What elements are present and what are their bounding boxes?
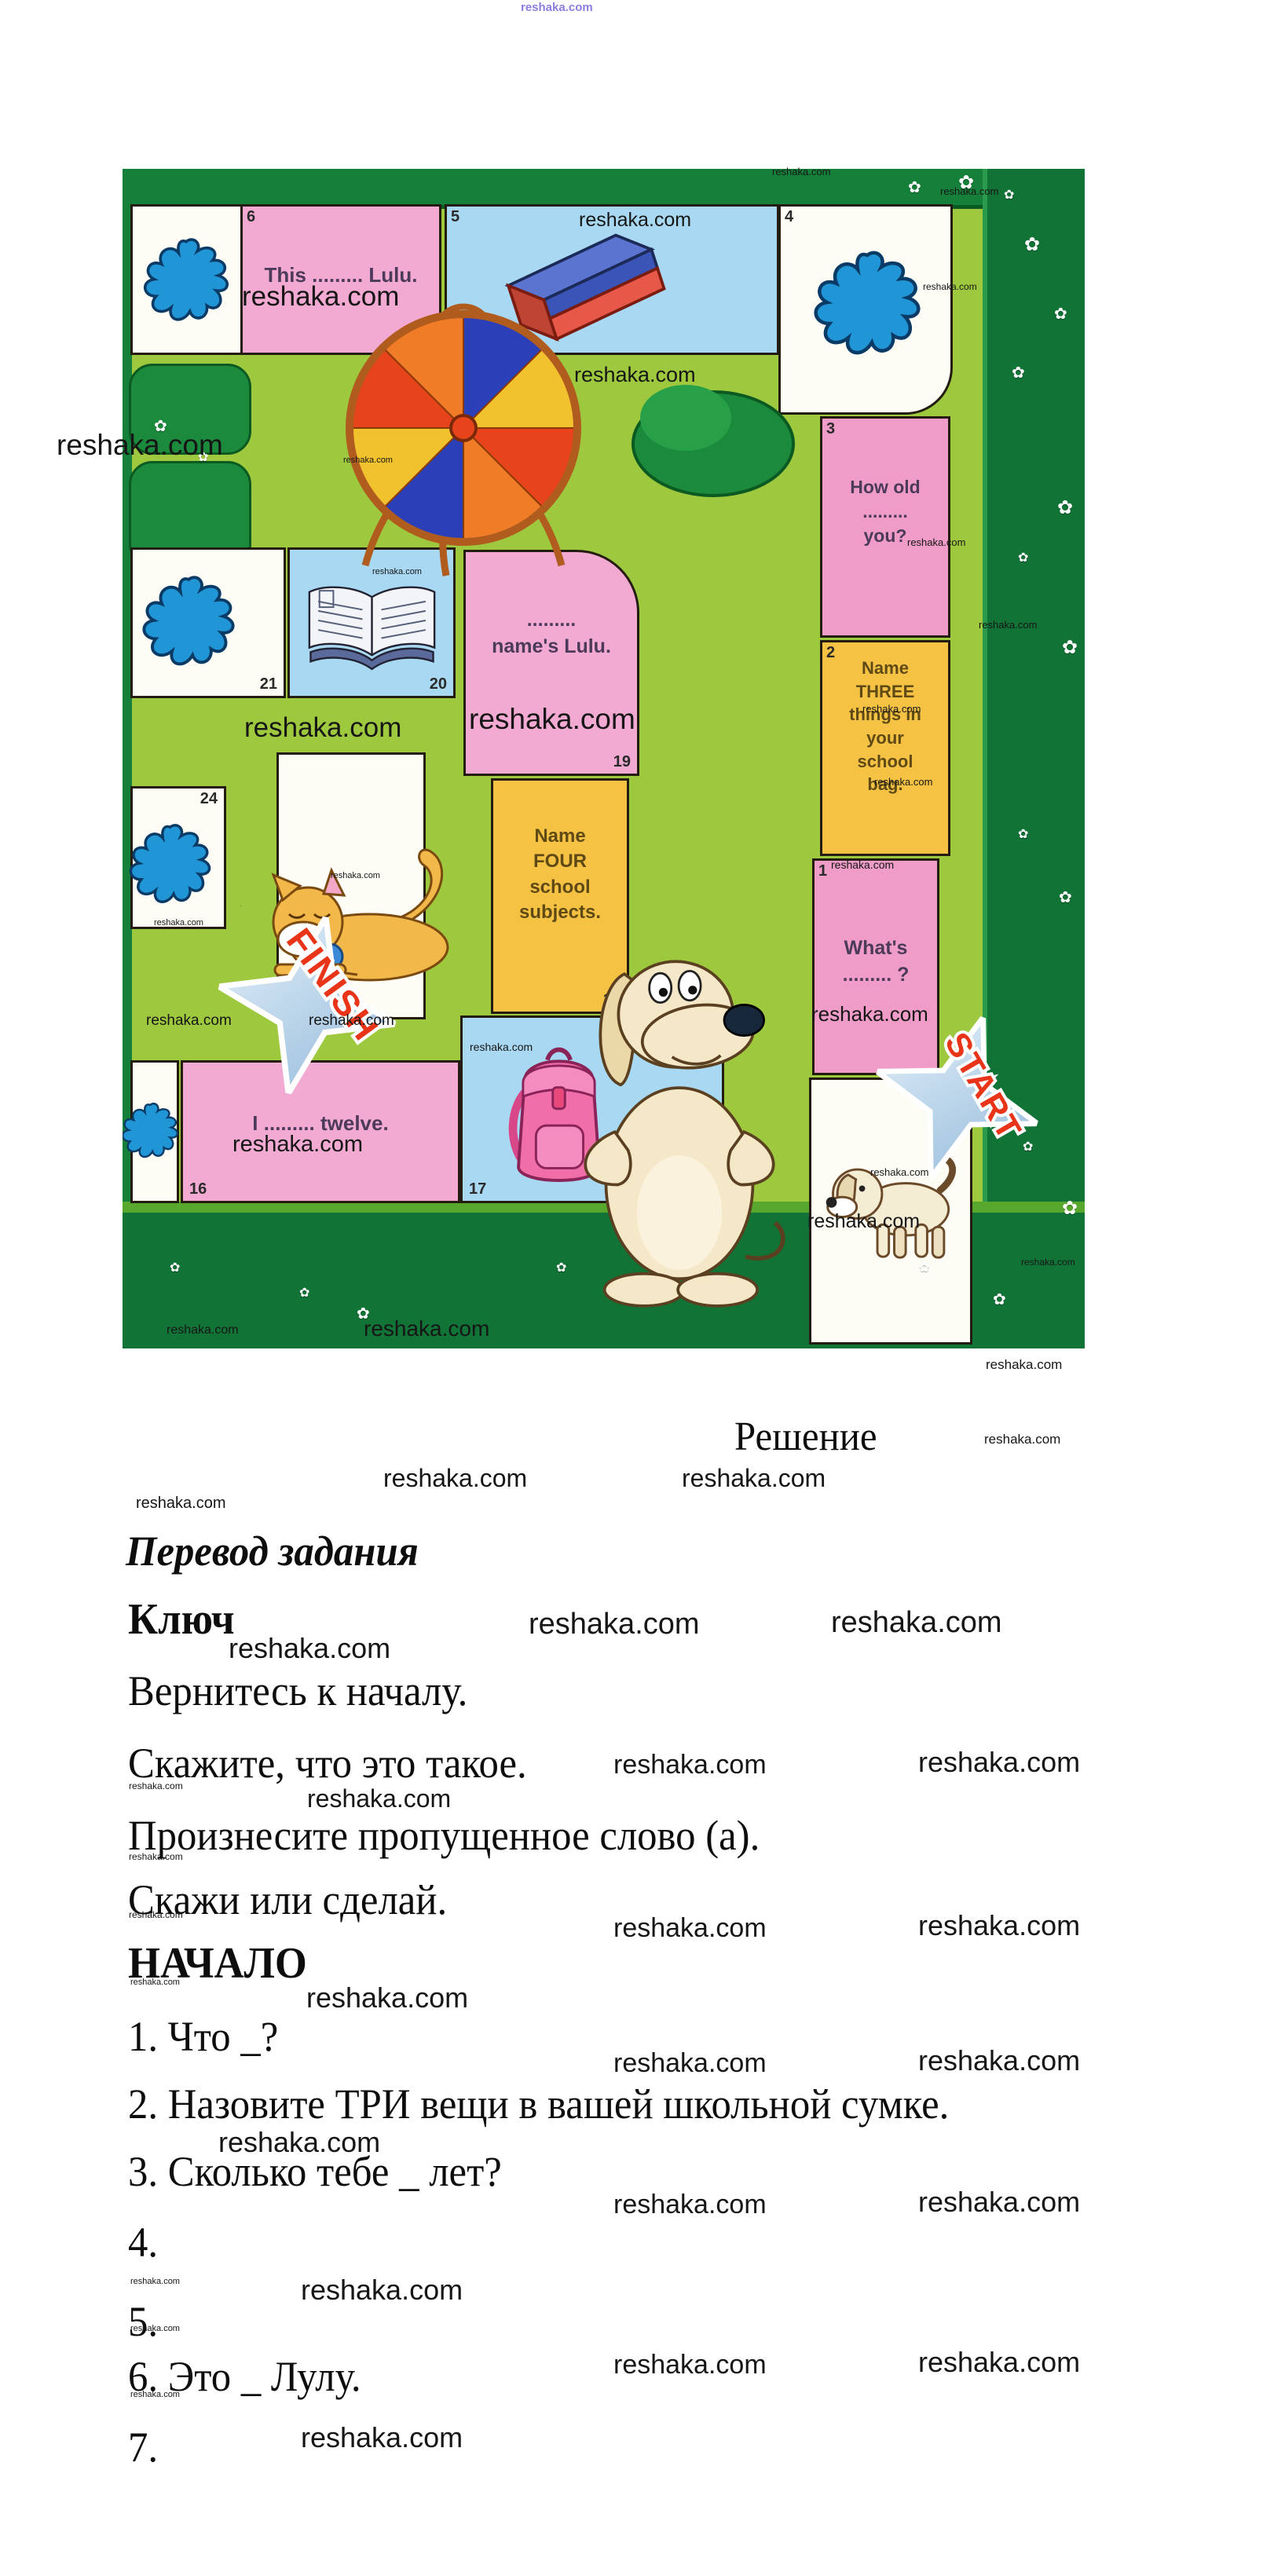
paint-splat-icon: [808, 242, 926, 368]
flower-icon: ✿: [1062, 1199, 1078, 1218]
line-back-to-start: Вернитесь к началу.: [128, 1667, 467, 1715]
watermark: reshaka.com: [343, 456, 393, 465]
watermark: reshaka.com: [574, 364, 696, 386]
flower-icon: ✿: [1057, 499, 1073, 518]
watermark: reshaka.com: [136, 1495, 226, 1511]
watermark: reshaka.com: [306, 1984, 468, 2012]
square-number: 21: [260, 675, 277, 693]
watermark: reshaka.com: [918, 2188, 1080, 2216]
watermark: reshaka.com: [682, 1465, 826, 1491]
watermark: reshaka.com: [831, 859, 894, 870]
square-number: 24: [200, 790, 218, 808]
watermark: reshaka.com: [301, 2424, 463, 2452]
square-18-text: Name FOUR school subjects.: [493, 824, 627, 926]
square-number: 4: [785, 208, 793, 226]
list-item-2: 2. Назовите ТРИ вещи в вашей школьной су…: [128, 2080, 949, 2128]
watermark: reshaka.com: [613, 1915, 767, 1941]
watermark: reshaka.com: [986, 1358, 1062, 1371]
start-arrow: START: [873, 1013, 1042, 1182]
flower-icon: ✿: [299, 1287, 309, 1300]
watermark: reshaka.com: [811, 1004, 928, 1024]
list-item-4: 4.: [128, 2218, 158, 2267]
square-21: 21: [130, 547, 286, 698]
square-number: 17: [469, 1180, 486, 1198]
flower-icon: ✿: [908, 180, 921, 196]
watermark: reshaka.com: [940, 186, 998, 196]
flower-icon: ✿: [1018, 552, 1028, 565]
watermark: reshaka.com: [521, 2, 593, 13]
watermark: reshaka.com: [613, 1751, 767, 1778]
watermark: reshaka.com: [242, 283, 399, 310]
flower-icon: ✿: [1024, 236, 1040, 254]
paint-splat-icon: [123, 1094, 181, 1169]
flower-icon: ✿: [1004, 189, 1014, 202]
watermark: reshaka.com: [918, 2047, 1080, 2075]
watermark: reshaka.com: [918, 1748, 1080, 1776]
watermark: reshaka.com: [167, 1324, 239, 1337]
watermark: reshaka.com: [772, 166, 830, 177]
list-item-7: 7.: [128, 2423, 158, 2472]
square-number: 3: [826, 420, 835, 438]
watermark: reshaka.com: [244, 714, 401, 741]
square-1-text: What's ......... ?: [815, 935, 937, 989]
flower-icon: ✿: [993, 1292, 1006, 1308]
line-missing-word: Произнесите пропущенное слово (а).: [128, 1811, 760, 1860]
watermark: reshaka.com: [130, 2278, 180, 2286]
square-splat-bottomleft: [130, 1060, 179, 1203]
watermark: reshaka.com: [229, 1634, 390, 1663]
watermark: reshaka.com: [129, 1781, 183, 1791]
flower-icon: ✿: [919, 1262, 929, 1275]
watermark: reshaka.com: [979, 620, 1037, 630]
watermark: reshaka.com: [57, 430, 223, 459]
watermark: reshaka.com: [469, 704, 635, 734]
watermark: reshaka.com: [907, 537, 965, 547]
watermark: reshaka.com: [154, 919, 203, 928]
watermark: reshaka.com: [923, 282, 977, 291]
paint-splat-icon: [137, 565, 240, 679]
square-4: 4: [778, 204, 953, 415]
square-19-text: ......... name's Lulu.: [466, 607, 637, 660]
list-item-5: 5.: [128, 2297, 158, 2346]
watermark: reshaka.com: [331, 872, 380, 880]
square-number: 16: [189, 1180, 207, 1198]
watermark: reshaka.com: [874, 777, 932, 787]
square-number: 6: [247, 208, 255, 226]
watermark: reshaka.com: [130, 2325, 180, 2333]
flower-icon: ✿: [170, 1262, 180, 1275]
watermark: reshaka.com: [613, 2191, 767, 2218]
square-2: 2 Name THREE things in your school bag.: [820, 640, 950, 856]
square-number: 1: [818, 862, 827, 880]
dog-icon: [550, 919, 809, 1315]
square-3: 3 How old ......... you?: [820, 416, 950, 638]
watermark: reshaka.com: [383, 1465, 527, 1491]
spinner-wheel: [322, 287, 605, 601]
line-say-what: Скажите, что это такое.: [128, 1739, 527, 1787]
page: { "wm_text": "reshaka.com", "board": { "…: [0, 0, 1285, 2576]
watermark: reshaka.com: [307, 1786, 451, 1811]
watermark: reshaka.com: [831, 1608, 1002, 1637]
watermark: reshaka.com: [870, 1167, 928, 1177]
flower-icon: ✿: [1012, 365, 1025, 381]
watermark: reshaka.com: [807, 1212, 920, 1231]
watermark: reshaka.com: [1021, 1257, 1075, 1267]
square-24: 24: [130, 786, 226, 929]
watermark: reshaka.com: [146, 1013, 232, 1028]
watermark: reshaka.com: [301, 2276, 463, 2304]
watermark: reshaka.com: [130, 1978, 180, 1987]
solution-heading: Решение: [734, 1414, 877, 1460]
watermark: reshaka.com: [984, 1433, 1060, 1446]
watermark: reshaka.com: [130, 2391, 180, 2399]
translation-heading: Перевод задания: [126, 1527, 419, 1575]
watermark: reshaka.com: [372, 568, 422, 576]
watermark: reshaka.com: [470, 1041, 533, 1052]
watermark: reshaka.com: [918, 1912, 1080, 1940]
watermark: reshaka.com: [129, 1852, 183, 1861]
watermark: reshaka.com: [918, 2348, 1080, 2377]
square-splat-topleft: [130, 204, 244, 355]
flower-icon: ✿: [1059, 890, 1072, 906]
flower-icon: ✿: [1062, 639, 1078, 657]
key-heading: Ключ: [128, 1594, 235, 1645]
finish-arrow: FINISH: [217, 915, 397, 1096]
watermark: reshaka.com: [613, 2050, 767, 2077]
square-number: 19: [613, 753, 631, 771]
watermark: reshaka.com: [529, 1609, 700, 1639]
watermark: reshaka.com: [613, 2351, 767, 2378]
watermark: reshaka.com: [579, 210, 691, 230]
watermark: reshaka.com: [364, 1318, 489, 1340]
square-number: 5: [451, 208, 459, 226]
flower-icon: ✿: [1018, 829, 1028, 841]
list-item-1: 1. Что _?: [128, 2012, 278, 2061]
board-game-image: 6 This ......... Lulu. 5 4 3 How old ...…: [123, 169, 1085, 1348]
watermark: reshaka.com: [309, 1013, 394, 1028]
paint-splat-icon: [125, 816, 215, 914]
flower-icon: ✿: [1054, 306, 1067, 322]
paint-splat-icon: [139, 226, 233, 336]
watermark: reshaka.com: [218, 2128, 380, 2157]
watermark: reshaka.com: [862, 704, 921, 714]
watermark: reshaka.com: [232, 1133, 363, 1156]
watermark: reshaka.com: [129, 1910, 183, 1919]
